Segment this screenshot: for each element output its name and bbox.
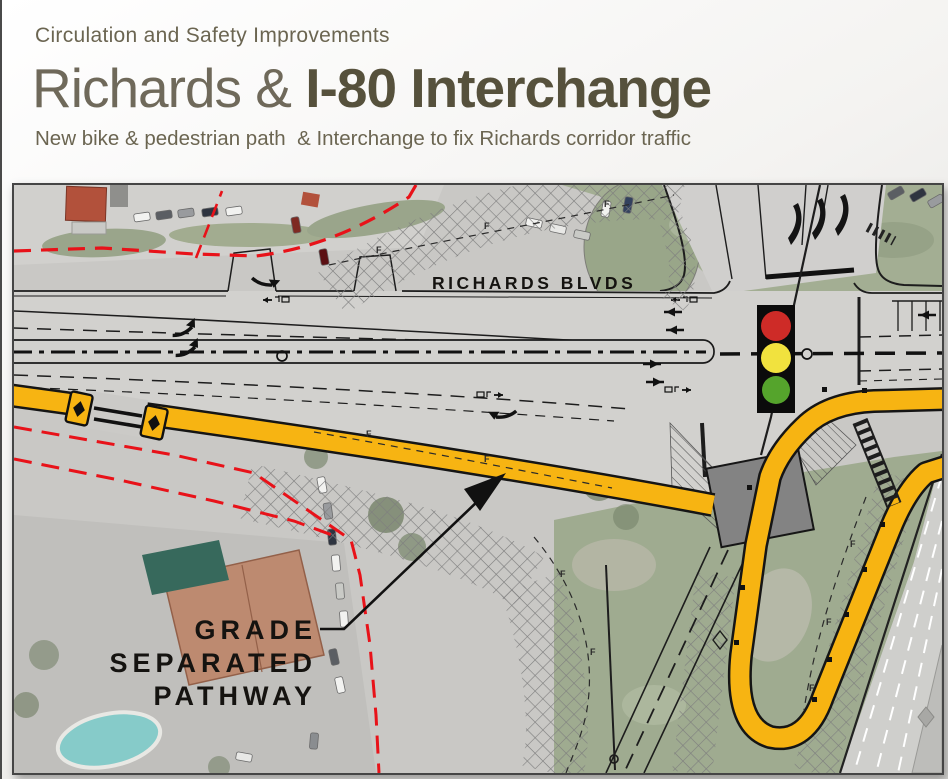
- slide-eyebrow: Circulation and Safety Improvements: [35, 24, 390, 48]
- slide-title: Richards & I-80 Interchange: [32, 56, 711, 120]
- svg-text:F: F: [809, 683, 815, 693]
- svg-text:F: F: [850, 539, 856, 549]
- svg-text:F: F: [484, 221, 490, 231]
- slide-title-regular: Richards &: [32, 57, 305, 119]
- svg-text:F: F: [376, 245, 382, 255]
- signal-yellow-light: [761, 343, 791, 373]
- svg-text:F: F: [484, 454, 490, 464]
- callout-line-1: GRADE: [194, 615, 317, 645]
- signal-green-light: [762, 376, 790, 404]
- svg-text:F: F: [604, 199, 610, 209]
- plan-drawing: F F F F F F F F F F RICHARDS BLVDS GRADE…: [14, 185, 942, 773]
- traffic-signal-icon: [757, 305, 795, 413]
- path-crossing-pod: [140, 405, 168, 440]
- slide-subtitle: New bike & pedestrian path & Interchange…: [35, 127, 691, 151]
- callout-line-2: SEPARATED: [109, 648, 317, 678]
- slide-title-bold: I-80 Interchange: [305, 57, 711, 119]
- svg-text:F: F: [826, 617, 832, 627]
- svg-text:F: F: [366, 429, 372, 439]
- callout-line-3: PATHWAY: [153, 681, 317, 711]
- svg-text:F: F: [560, 569, 566, 579]
- signal-red-light: [761, 311, 791, 341]
- svg-text:F: F: [590, 647, 596, 657]
- interchange-plan-map: F F F F F F F F F F RICHARDS BLVDS GRADE…: [12, 183, 944, 775]
- road-label: RICHARDS BLVDS: [432, 273, 636, 293]
- path-crossing-pod: [65, 391, 93, 426]
- slide: { "header": { "eyebrow": "Circulation an…: [0, 0, 948, 779]
